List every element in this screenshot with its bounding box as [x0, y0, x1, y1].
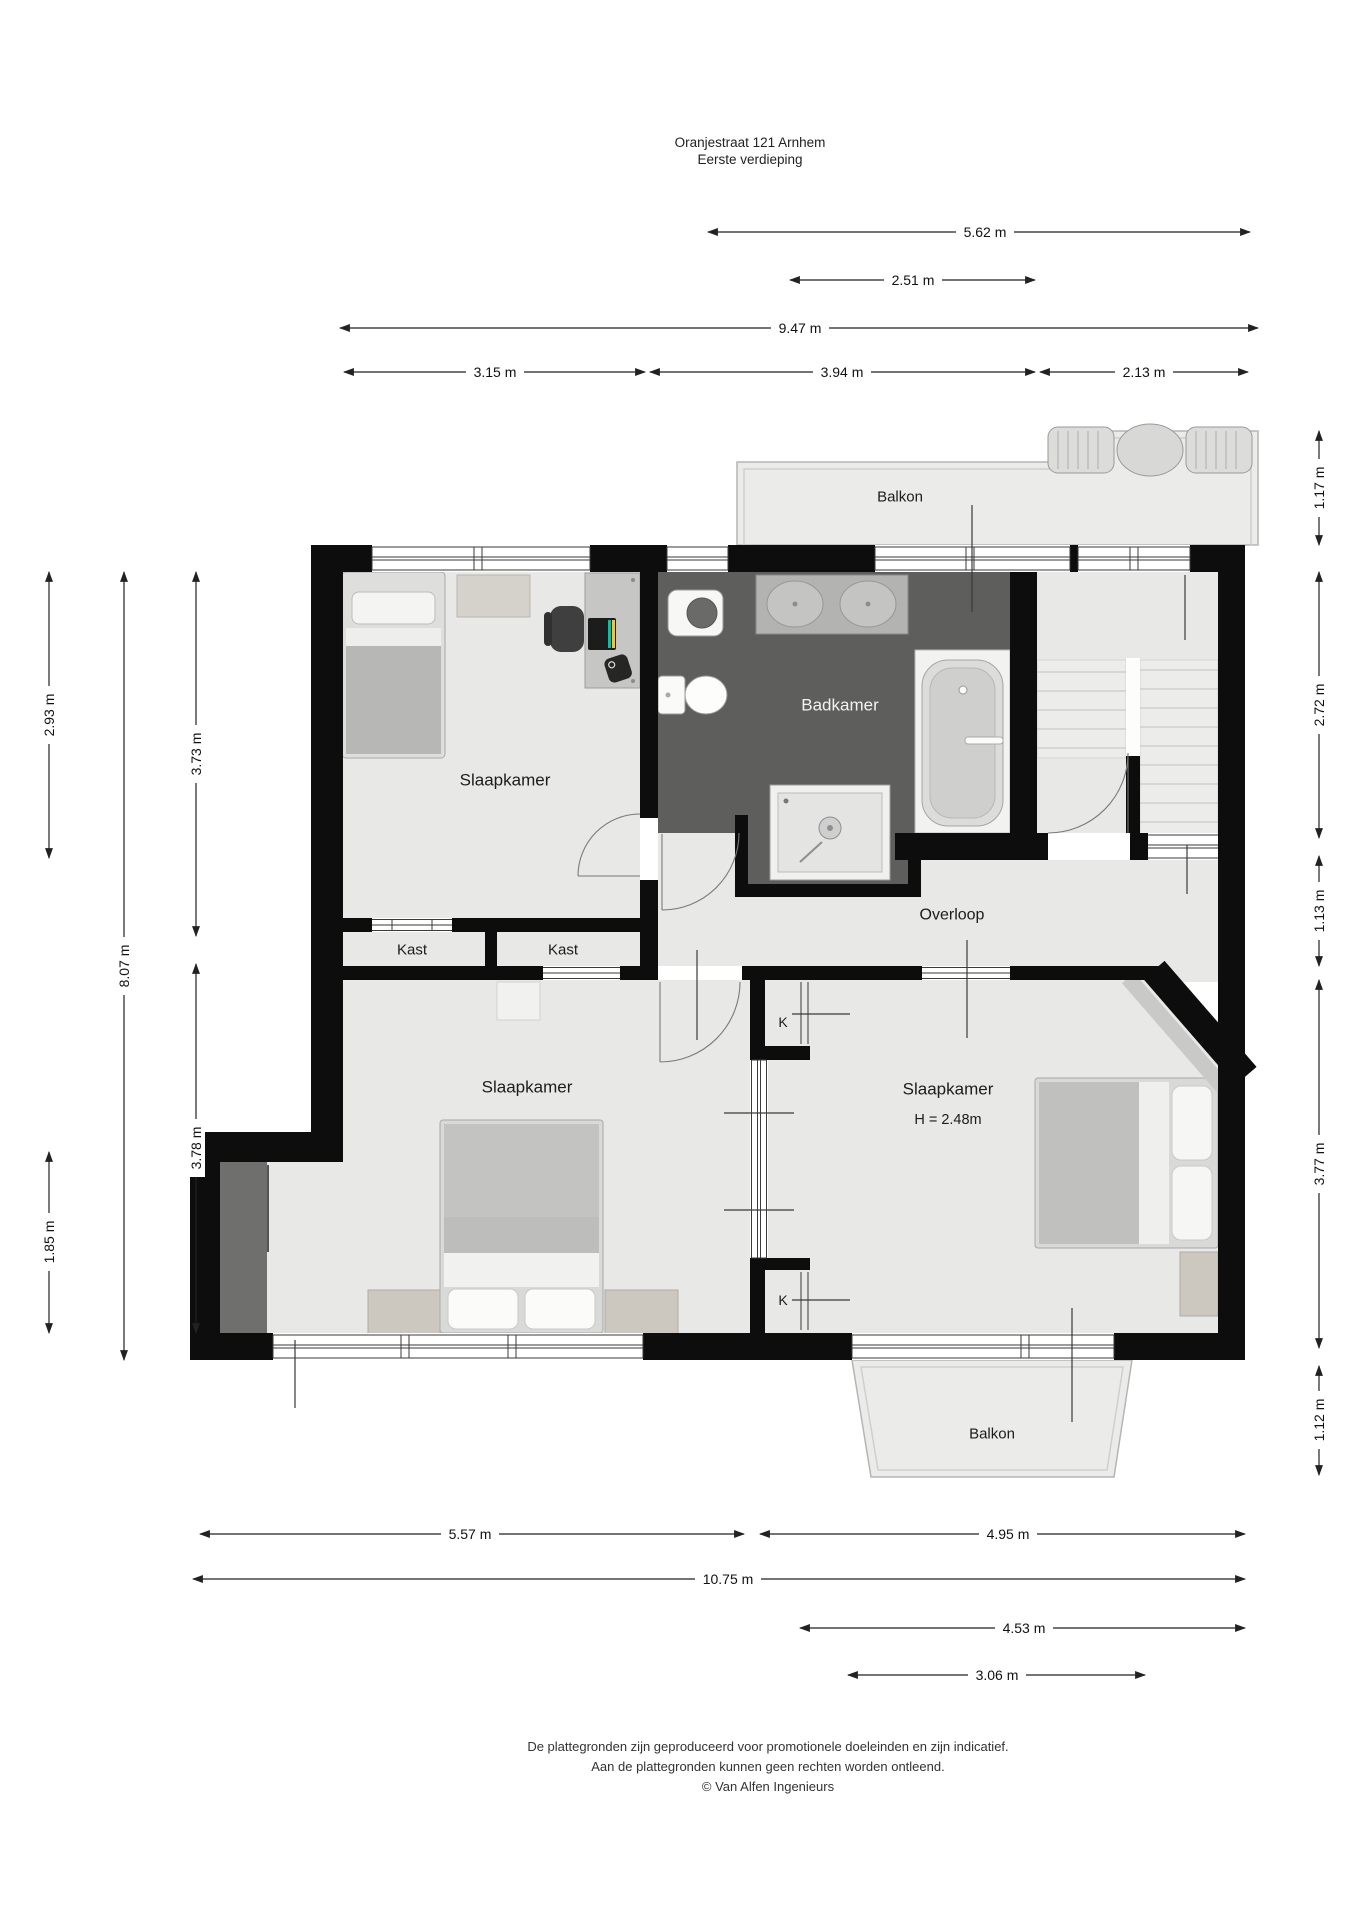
dim-right-113: 1.13 m [1311, 890, 1327, 933]
balcony-table-icon [1117, 424, 1183, 476]
nightstand-icon [368, 1290, 440, 1334]
dim-right-112: 1.12 m [1311, 1399, 1327, 1442]
balcony-top [737, 424, 1258, 545]
floorplan-canvas: Oranjestraat 121 Arnhem Eerste verdiepin… [0, 0, 1358, 1920]
nightstand-icon [605, 1290, 678, 1334]
double-bed-icon [440, 1120, 603, 1333]
dim-top-213: 2.13 m [1123, 364, 1166, 380]
double-bed-icon [1035, 1078, 1218, 1248]
window-icon [273, 1333, 643, 1360]
dim-bottom-557: 5.57 m [449, 1526, 492, 1542]
room-label-badkamer: Badkamer [801, 696, 879, 715]
room-label-kast-1: Kast [397, 942, 428, 959]
footer-line-2: Aan de plattegronden kunnen geen rechten… [591, 1759, 944, 1774]
room-label-slaapkamer-3: Slaapkamer [903, 1080, 994, 1099]
dim-right-377: 3.77 m [1311, 1143, 1327, 1186]
room-label-kast-2: Kast [548, 942, 579, 959]
room-label-balkon-bottom: Balkon [969, 1426, 1015, 1443]
single-bed-icon [342, 572, 445, 758]
bidet-icon [658, 676, 727, 714]
dim-right-272: 2.72 m [1311, 684, 1327, 727]
dim-right-117: 1.17 m [1311, 467, 1327, 510]
dim-top-315: 3.15 m [474, 364, 517, 380]
dim-top-947: 9.47 m [779, 320, 822, 336]
dim-left-807: 8.07 m [116, 945, 132, 988]
title-line-2: Eerste verdieping [697, 152, 802, 167]
footer-line-3: © Van Alfen Ingenieurs [702, 1779, 835, 1794]
window-icon [1078, 545, 1190, 572]
door-opening [1048, 833, 1130, 860]
dim-top-394: 3.94 m [821, 364, 864, 380]
balcony-bottom [852, 1360, 1132, 1477]
bathtub-icon [915, 650, 1010, 833]
dim-bottom-453: 4.53 m [1003, 1620, 1046, 1636]
dim-bottom-306: 3.06 m [976, 1667, 1019, 1683]
room-label-slaapkamer-1: Slaapkamer [460, 771, 551, 790]
room-label-slaapkamer-2: Slaapkamer [482, 1078, 573, 1097]
dim-left-293: 2.93 m [41, 694, 57, 737]
closet-door-icon [372, 918, 452, 932]
dimension-lines-bottom: 5.57 m 4.95 m 10.75 m 4.53 m 3.06 m [193, 1525, 1245, 1683]
knee-wall-band [220, 1162, 267, 1335]
room-label-k-2: K [778, 1292, 788, 1308]
door-opening [640, 818, 658, 880]
nightstand-icon [1180, 1252, 1218, 1316]
lounge-chair-icon [1186, 427, 1252, 473]
room-label-k-1: K [778, 1014, 788, 1030]
window-icon [1148, 833, 1218, 860]
window-icon [667, 545, 728, 572]
footer-line-1: De plattegronden zijn geproduceerd voor … [527, 1739, 1008, 1754]
lounge-chair-icon [1048, 427, 1114, 473]
dim-bottom-1075: 10.75 m [703, 1571, 754, 1587]
rug-icon [457, 575, 530, 617]
dimension-lines-left: 2.93 m 8.07 m 3.73 m 3.78 m 1.85 m [40, 572, 205, 1360]
shower-icon [770, 785, 890, 880]
dim-left-373: 3.73 m [188, 733, 204, 776]
room-label-slaapkamer-3-height: H = 2.48m [914, 1112, 981, 1128]
dimension-lines-right: 1.17 m 2.72 m 1.13 m 3.77 m 1.12 m [1310, 431, 1328, 1475]
laptop-icon [588, 618, 616, 650]
dim-left-185: 1.85 m [41, 1221, 57, 1264]
sliding-door-icon [922, 966, 1010, 980]
toilet-icon [668, 590, 723, 636]
dim-top-251: 2.51 m [892, 272, 935, 288]
dim-left-378: 3.78 m [188, 1127, 204, 1170]
glazed-partition-icon [750, 1060, 768, 1258]
room-label-overloop: Overloop [920, 907, 985, 924]
mat-icon [497, 982, 540, 1020]
dimension-lines-top: 5.62 m 2.51 m 9.47 m 3.15 m 3.94 m 2.13 … [340, 223, 1258, 380]
dim-bottom-495: 4.95 m [987, 1526, 1030, 1542]
window-icon [852, 1333, 1114, 1360]
title-line-1: Oranjestraat 121 Arnhem [675, 135, 826, 150]
door-opening [658, 966, 742, 980]
dim-top-562: 5.62 m [964, 224, 1007, 240]
window-icon [372, 545, 590, 572]
room-label-balkon-top: Balkon [877, 489, 923, 506]
closet-door-icon [543, 966, 620, 980]
double-sink-icon [756, 575, 908, 634]
desk-chair-icon [544, 606, 584, 652]
